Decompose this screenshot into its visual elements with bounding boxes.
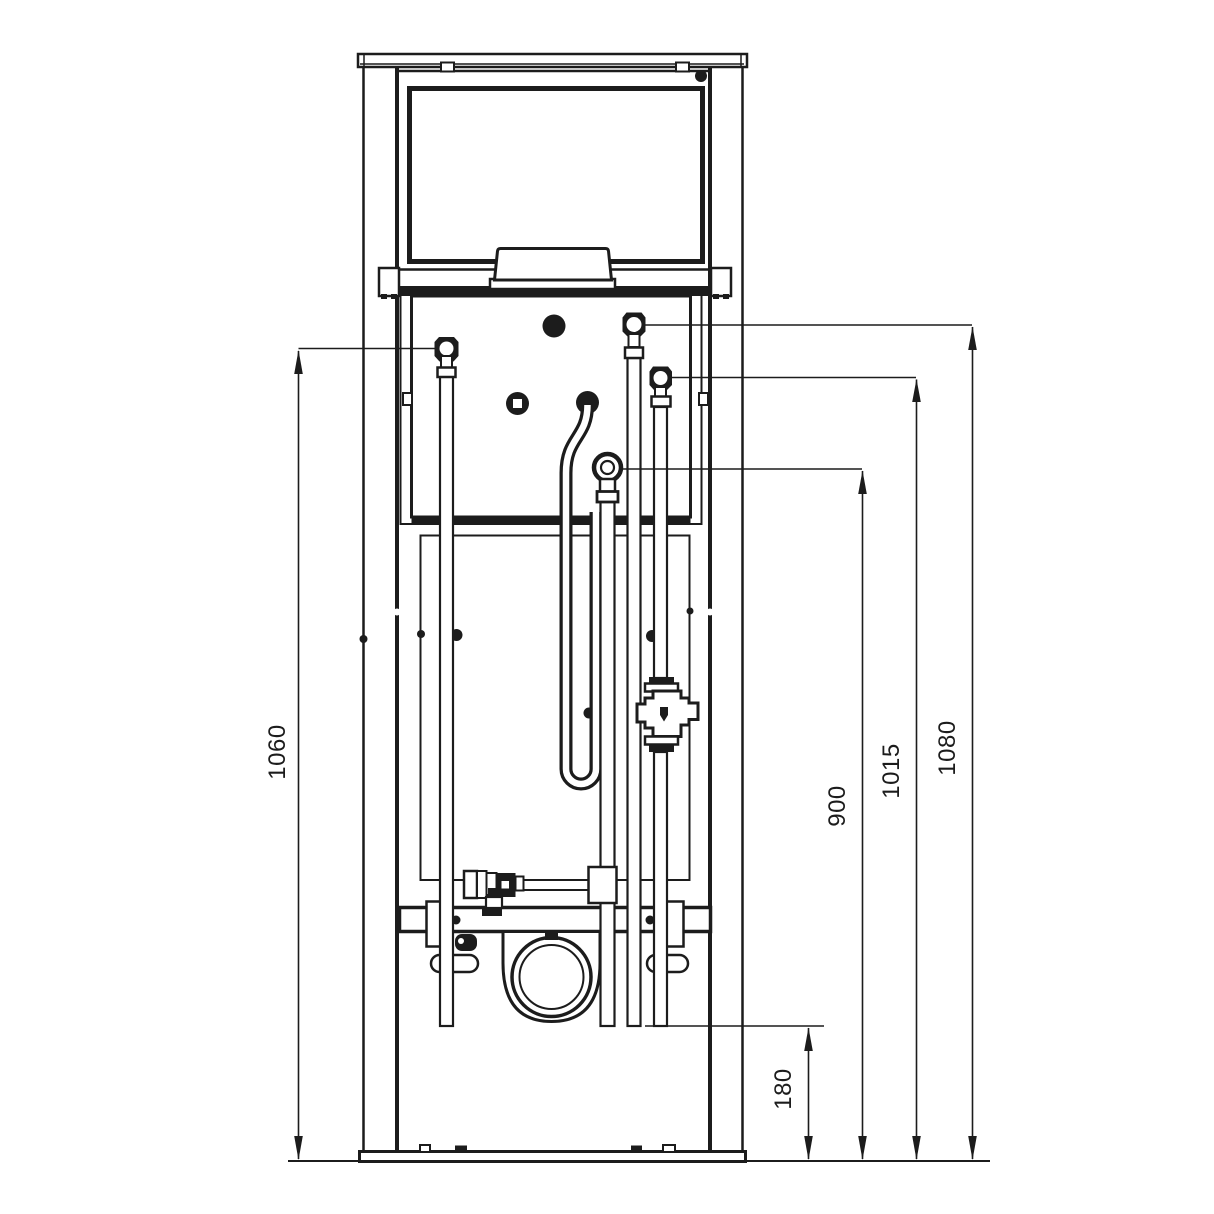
top-tab-left (441, 63, 454, 72)
arrow-up (858, 471, 867, 495)
flush-pipe (601, 500, 615, 1026)
dim-label-900: 900 (824, 785, 851, 827)
arrow-down (858, 1136, 867, 1160)
horizontal-supply-pipe (523, 880, 590, 890)
tank-clip-right (699, 393, 708, 405)
flush-elbow-ring (594, 454, 621, 481)
pipe-mid-lower (654, 752, 667, 1026)
outlet-pipe-outer (512, 938, 591, 1017)
upper-opening (410, 89, 703, 262)
pipe-outer-right (628, 358, 641, 1026)
arrow-down (294, 1136, 303, 1160)
connector-neck-left (441, 356, 452, 368)
arrow-up (294, 350, 303, 374)
left-rail-notch (394, 609, 401, 616)
crossbar-bracket-right (711, 268, 731, 296)
base-foot (420, 1145, 430, 1152)
supply-pipe-left (440, 375, 453, 1026)
arrow-up (912, 379, 921, 402)
arrow-up (968, 327, 977, 351)
connector-eye-outer (627, 317, 642, 332)
dim-label-left: 1060 (264, 724, 291, 779)
arrow-up (804, 1028, 813, 1052)
mounting-bracket-right (667, 902, 684, 947)
connector-neck-outer (629, 334, 640, 347)
tank-clip-left (403, 393, 412, 405)
corner-fastener-dot (695, 70, 707, 82)
base-foot (663, 1145, 675, 1152)
stop-valve-outlet (516, 877, 524, 891)
crossbar-bracket-left (379, 268, 399, 296)
left-rail-stud (360, 635, 368, 643)
valve-bottom-collar (645, 737, 678, 745)
top-tab-right (676, 63, 689, 72)
arrow-down (968, 1136, 977, 1160)
tank-port-hole (543, 315, 566, 338)
dim-label-1080: 1080 (934, 720, 961, 775)
connector-eye-left (440, 342, 454, 356)
valve-foot (488, 888, 498, 897)
arrow-down (804, 1136, 813, 1160)
connector-collar-outer (625, 348, 643, 359)
bracket-foot (381, 294, 387, 299)
panel-clip-right (687, 608, 694, 615)
pan-slot-left (431, 955, 478, 972)
bracket-foot (723, 294, 729, 299)
base-foot (631, 1146, 642, 1153)
service-cover-tab (495, 249, 612, 281)
flush-neck (600, 479, 615, 492)
square-port-window (513, 399, 522, 408)
technical-drawing-canvas: 1060 900 1015 1080 180 (0, 0, 1214, 1214)
connector-eye-mid (654, 371, 668, 385)
pipe-mid-upper (654, 407, 667, 678)
dim-label-1015: 1015 (878, 743, 905, 798)
stop-valve-ring (477, 871, 487, 898)
connector-collar-left (438, 368, 456, 378)
pan-hook (455, 934, 477, 951)
panel-clip-left (417, 630, 425, 638)
bracket-foot (391, 294, 397, 299)
right-rail-notch (707, 609, 714, 616)
valve-支-block (486, 897, 502, 908)
frame (358, 54, 747, 1162)
flush-collar (597, 492, 618, 503)
stop-valve-body (464, 871, 477, 898)
tee-fitting (589, 867, 617, 903)
base-foot (455, 1146, 467, 1153)
drawing-page: 1060 900 1015 1080 180 (0, 0, 1214, 1214)
stop-valve-knob-slot (502, 881, 510, 889)
outlet-notch (545, 933, 558, 940)
dim-label-180: 180 (770, 1068, 797, 1110)
bracket-foot (713, 294, 719, 299)
connector-collar-mid (652, 397, 671, 407)
valve-base-block (482, 907, 502, 916)
pan-hook-hole (458, 938, 464, 944)
arrow-down (912, 1136, 921, 1160)
